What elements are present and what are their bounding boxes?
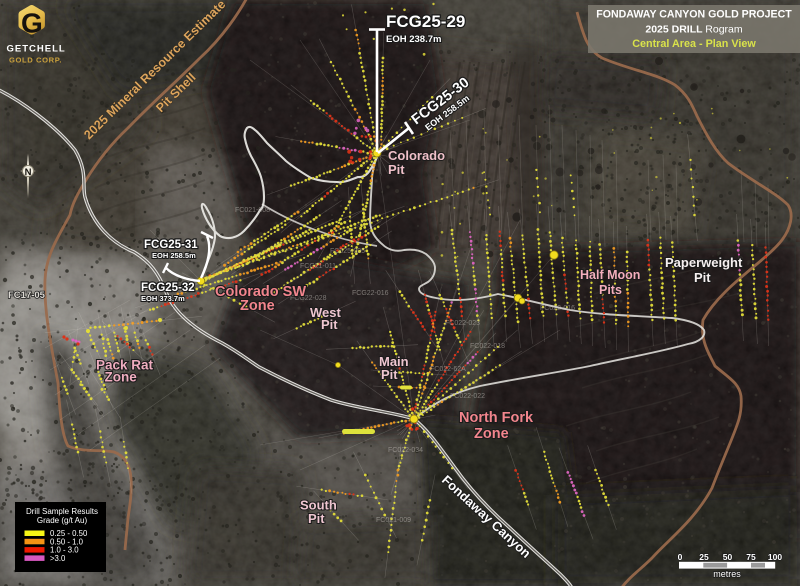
svg-text:Half Moon: Half Moon [580, 268, 640, 282]
svg-text:25: 25 [699, 552, 709, 562]
svg-text:Pit: Pit [388, 162, 405, 177]
svg-text:FC022-034: FC022-034 [388, 447, 423, 454]
svg-text:75: 75 [746, 552, 756, 562]
svg-text:Central Area - Plan View: Central Area - Plan View [632, 38, 756, 50]
svg-text:>3.0: >3.0 [50, 554, 66, 563]
svg-text:Grade (g/t Au): Grade (g/t Au) [37, 516, 88, 525]
svg-text:FC022-016: FC022-016 [540, 305, 575, 312]
svg-text:North Fork: North Fork [459, 410, 534, 426]
svg-text:GOLD CORP.: GOLD CORP. [9, 56, 62, 65]
svg-text:50: 50 [723, 552, 733, 562]
svg-text:FCG25-31: FCG25-31 [144, 239, 198, 251]
svg-text:GETCHELL: GETCHELL [7, 44, 66, 55]
svg-text:Paperweight: Paperweight [665, 255, 743, 270]
svg-text:Pit: Pit [381, 367, 398, 382]
svg-text:100: 100 [768, 552, 782, 562]
svg-text:Pit: Pit [308, 511, 325, 526]
svg-text:Zone: Zone [474, 426, 509, 442]
svg-text:Zone: Zone [105, 370, 138, 385]
svg-text:FC025-005: FC025-005 [330, 248, 365, 255]
svg-text:FCG25-32: FCG25-32 [141, 282, 195, 294]
svg-text:EOH 258.5m: EOH 258.5m [152, 251, 196, 260]
svg-text:FCG22-016: FCG22-016 [352, 290, 389, 297]
svg-text:Pit: Pit [694, 270, 711, 285]
svg-text:Pits: Pits [599, 283, 622, 297]
svg-text:FC022-018: FC022-018 [470, 343, 505, 350]
svg-text:FC021-008: FC021-008 [235, 207, 270, 214]
svg-text:Zone: Zone [240, 298, 275, 314]
svg-text:Drill Sample Results: Drill Sample Results [26, 507, 98, 516]
svg-text:Pit: Pit [321, 317, 338, 332]
svg-text:EOH 238.7m: EOH 238.7m [386, 34, 441, 45]
svg-text:2025 DRILL Rogram: 2025 DRILL Rogram [645, 24, 743, 36]
svg-text:FCG21-011: FCG21-011 [300, 263, 336, 270]
svg-text:FC17-05: FC17-05 [8, 290, 46, 301]
svg-text:N: N [25, 167, 32, 178]
svg-text:FCG25-29: FCG25-29 [386, 12, 465, 31]
svg-text:FONDAWAY CANYON GOLD PROJECT: FONDAWAY CANYON GOLD PROJECT [596, 9, 792, 21]
svg-text:FC022-022: FC022-022 [450, 393, 485, 400]
svg-text:metres: metres [713, 569, 741, 579]
svg-text:Colorado: Colorado [388, 148, 445, 163]
svg-text:EOH 373.7m: EOH 373.7m [141, 294, 185, 303]
svg-text:G: G [21, 7, 43, 38]
svg-text:FC021-009: FC021-009 [376, 517, 411, 524]
svg-text:FC022-023: FC022-023 [445, 320, 480, 327]
svg-text:FC022-62A: FC022-62A [430, 366, 466, 373]
svg-text:0: 0 [678, 552, 683, 562]
